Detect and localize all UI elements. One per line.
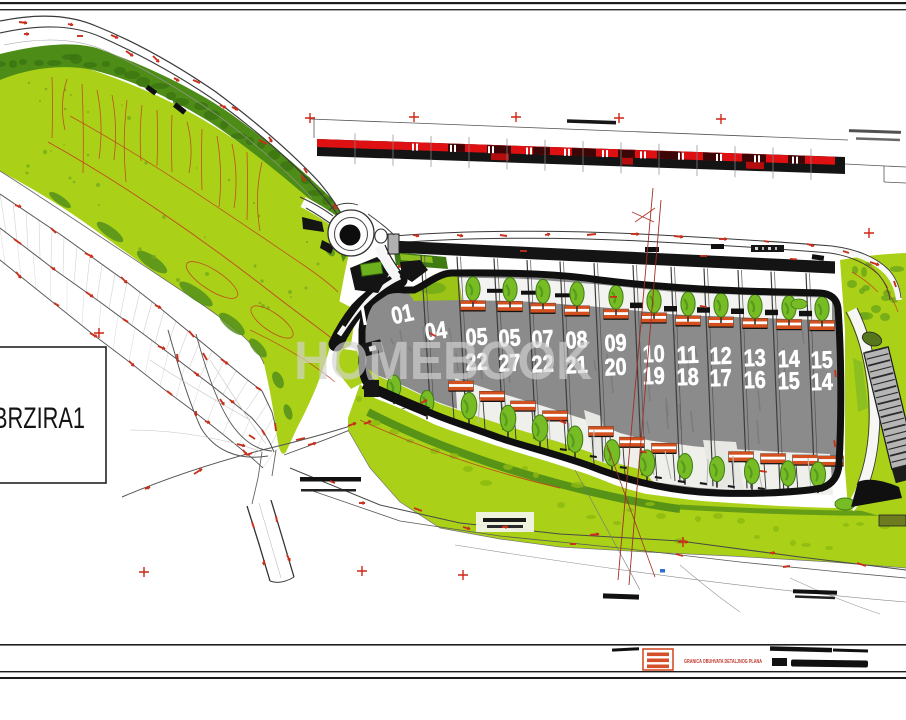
svg-text:14: 14 bbox=[810, 369, 833, 397]
svg-text:20: 20 bbox=[604, 353, 627, 381]
svg-text:GRANICA OBUHVATA DETALJNOG PLA: GRANICA OBUHVATA DETALJNOG PLANA bbox=[684, 659, 762, 665]
svg-text:16: 16 bbox=[743, 367, 766, 395]
svg-text:15: 15 bbox=[777, 368, 800, 396]
svg-text:HOMEBOOK: HOMEBOOK bbox=[294, 331, 592, 391]
svg-text:BRZIRA1: BRZIRA1 bbox=[0, 402, 85, 435]
svg-text:17: 17 bbox=[709, 365, 732, 393]
svg-text:18: 18 bbox=[676, 364, 699, 392]
